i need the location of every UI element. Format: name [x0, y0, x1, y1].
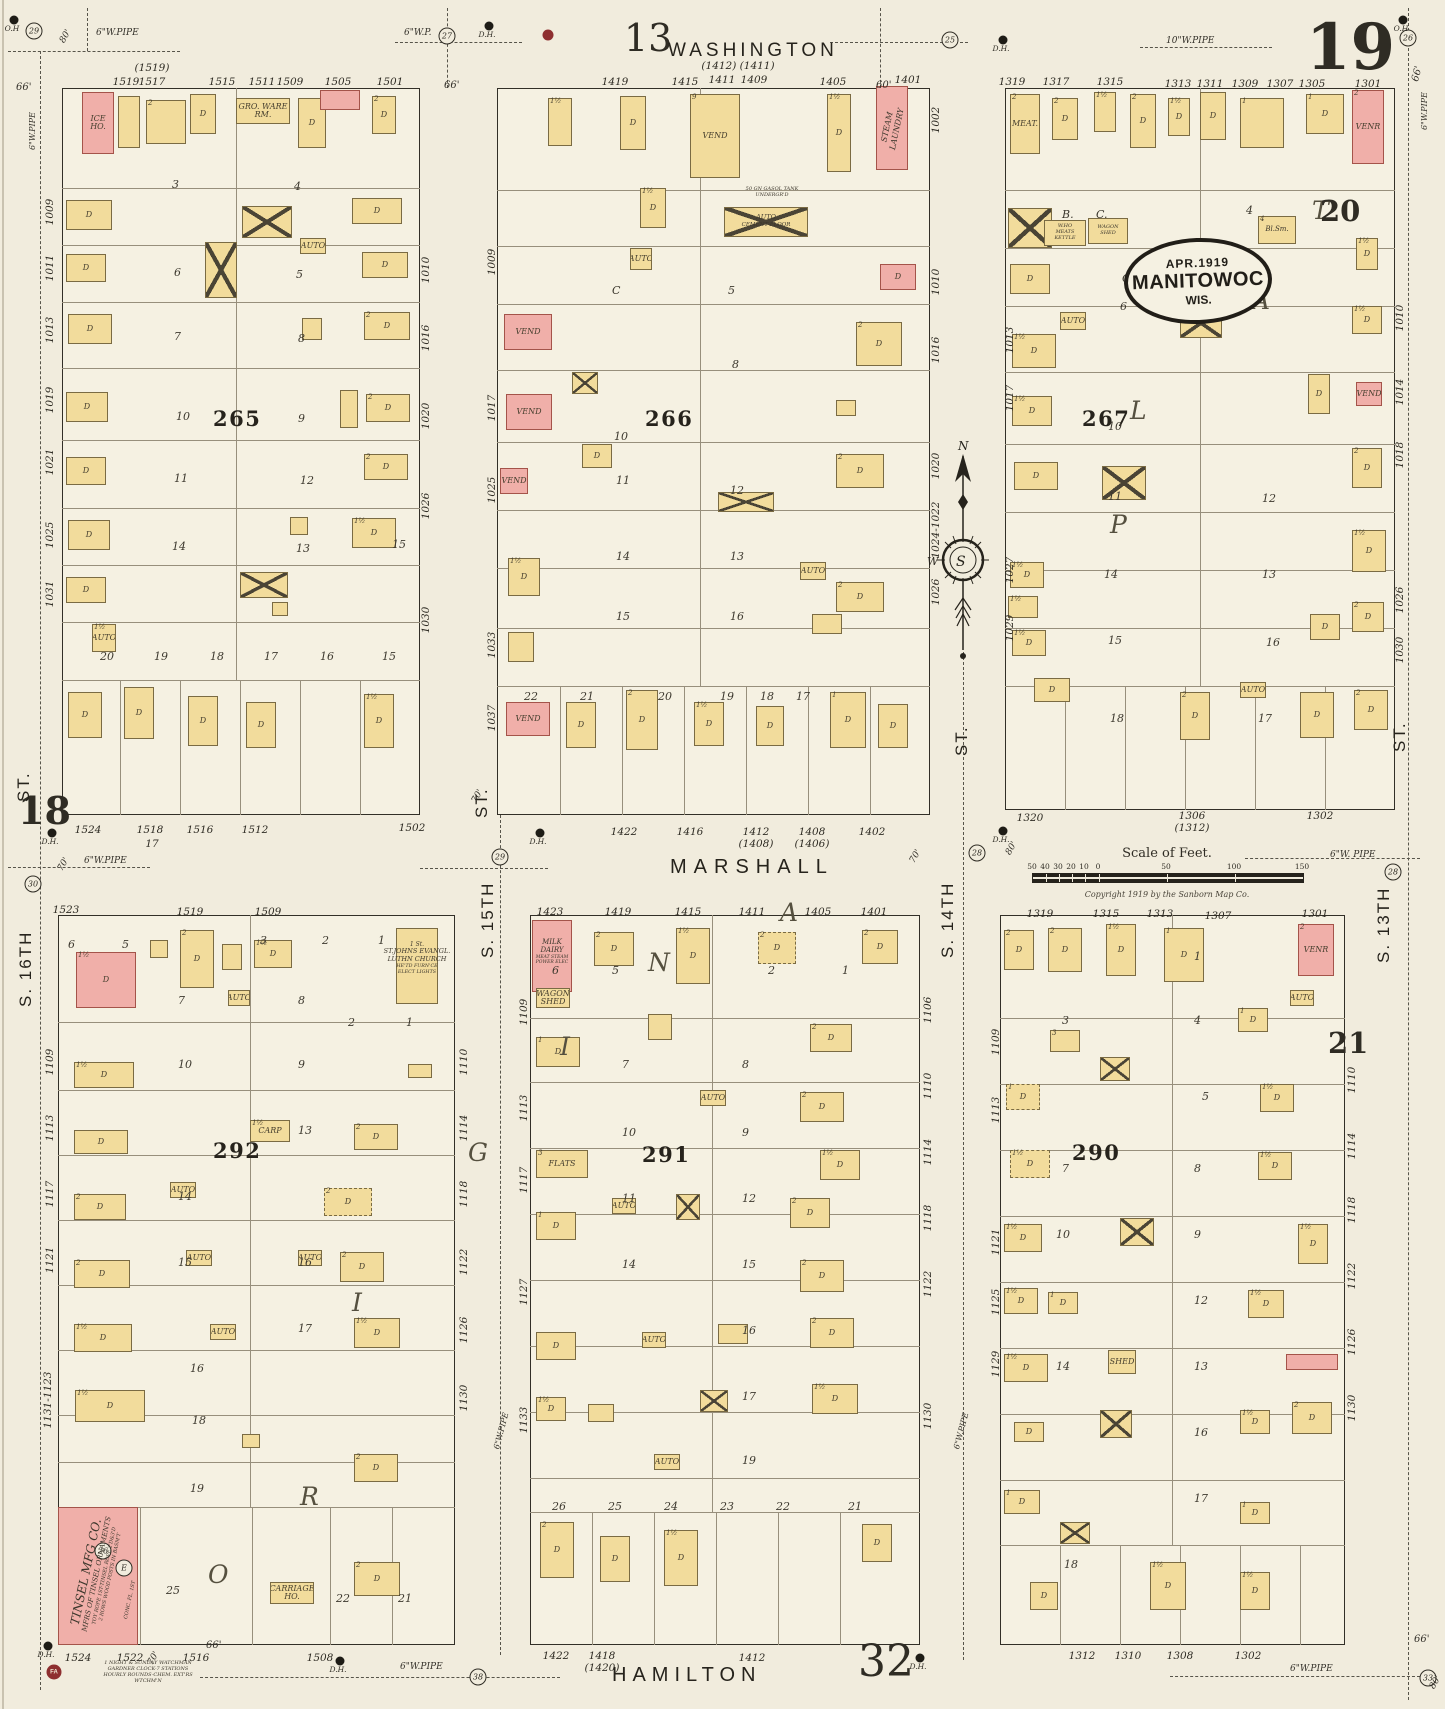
- utility-marker: 38: [470, 1669, 487, 1686]
- building: FLATS3: [536, 1150, 588, 1178]
- compass-rose: N S W: [925, 438, 1001, 666]
- building: D2: [354, 1124, 398, 1150]
- building-storeys: 2: [628, 689, 632, 697]
- building: D1½: [1106, 924, 1136, 976]
- water-pipe-line: [447, 8, 448, 88]
- plat-letter: N: [648, 948, 670, 977]
- building: D1½: [508, 558, 540, 596]
- lot-line: [1000, 1545, 1345, 1546]
- building-label: D: [1353, 531, 1385, 571]
- utility-marker: E: [116, 1560, 133, 1577]
- building-storeys: 3: [1052, 1029, 1056, 1037]
- map-annotation: 10"W.PIPE: [1166, 36, 1214, 46]
- house-number: 1401: [895, 74, 922, 86]
- building-label: ICE HO.: [83, 93, 113, 153]
- building-storeys: 1½: [78, 951, 89, 959]
- lot-number: 3: [172, 178, 179, 191]
- building: [1100, 1057, 1130, 1081]
- building: [272, 602, 288, 616]
- lot-number: 3: [260, 934, 267, 947]
- building-storeys: 2: [596, 931, 600, 939]
- building: [648, 1014, 672, 1040]
- lot-number: 14: [1056, 1360, 1070, 1373]
- street-label-marshall: MARSHALL: [670, 856, 834, 879]
- building-storeys: 1½: [1108, 923, 1119, 931]
- building-storeys: 2: [1132, 93, 1136, 101]
- building-label: VEND: [507, 395, 551, 429]
- building: [1120, 1218, 1154, 1246]
- building-label: D: [857, 323, 901, 365]
- building: D: [246, 702, 276, 748]
- building-storeys: 1: [1006, 1489, 1010, 1497]
- building-label: D: [1011, 265, 1049, 293]
- map-label: 1 NIGHT & SUNDAY WATCHMANGARDNER CLOCK-7…: [103, 1660, 192, 1684]
- building: AUTO: [210, 1324, 236, 1340]
- house-number: 1118: [1346, 1197, 1358, 1224]
- lot-line: [716, 1512, 717, 1645]
- house-number: 1020: [420, 403, 432, 430]
- building-label: AUTO: [631, 249, 651, 269]
- building-storeys: 1½: [1012, 1149, 1023, 1157]
- building: D: [1034, 678, 1070, 702]
- building-label: D: [367, 395, 409, 421]
- lot-number: 14: [622, 1258, 636, 1271]
- building: D: [1014, 462, 1058, 490]
- house-number: 1319: [999, 76, 1026, 88]
- building: MEAT.2: [1010, 94, 1040, 154]
- building-storeys: 1: [1240, 1007, 1244, 1015]
- building-label: D: [595, 933, 633, 965]
- scale-tick: 40: [1040, 862, 1050, 871]
- building-label: AUTO: [229, 991, 249, 1005]
- building-storeys: 2: [542, 1521, 546, 1529]
- lot-line: [1120, 1545, 1121, 1645]
- building-label: D: [75, 1195, 125, 1219]
- lot-line: [330, 1507, 331, 1645]
- lot-number: 18: [192, 1414, 206, 1427]
- building-label: WAGON SHED: [537, 989, 569, 1007]
- plat-letter: L: [1130, 396, 1147, 425]
- building-label: D: [791, 1199, 829, 1227]
- building: D: [582, 444, 612, 468]
- building-label: D: [325, 1189, 371, 1215]
- building: D1½: [1004, 1288, 1038, 1314]
- building-label: D: [811, 1025, 851, 1051]
- building-storeys: 1½: [696, 701, 707, 709]
- building-storeys: 2: [858, 321, 862, 329]
- building-label: D: [341, 1253, 383, 1281]
- building-label: VEND: [501, 469, 527, 493]
- map-annotation: 6"W. PIPE: [1330, 850, 1376, 860]
- lot-number: 16: [730, 610, 744, 623]
- hydrant-label: O.H: [1394, 24, 1409, 33]
- lot-number: 1: [406, 1016, 413, 1029]
- building: D: [74, 1130, 128, 1154]
- scale-bar: [1032, 873, 1304, 883]
- building-label: D: [837, 455, 883, 487]
- lot-number: 1: [842, 964, 849, 977]
- hydrant-label: D.H.: [992, 44, 1009, 53]
- lot-line: [1300, 1545, 1301, 1645]
- lot-number: 25: [608, 1500, 622, 1513]
- building: [150, 940, 168, 958]
- house-number: 1405: [820, 76, 847, 88]
- lot-line: [62, 245, 420, 246]
- building-label: D: [1293, 1403, 1331, 1433]
- building-storeys: 2: [1050, 927, 1054, 935]
- lot-number: 11: [616, 474, 630, 487]
- map-annotation: 66': [206, 1640, 221, 1651]
- lot-number: 5: [296, 268, 303, 281]
- lot-number: 17: [742, 1390, 756, 1403]
- house-number: 1013: [44, 317, 56, 344]
- lot-line: [62, 188, 420, 189]
- building-storeys: 2: [760, 931, 764, 939]
- lot-line: [530, 1082, 920, 1083]
- building: D1½: [1352, 530, 1386, 572]
- lot-line: [1255, 686, 1256, 810]
- building: D2: [1292, 1402, 1332, 1434]
- map-annotation: 6"W.PIPE: [952, 1411, 971, 1450]
- lot-number: C.: [1096, 208, 1108, 221]
- building: D1½: [1248, 1290, 1284, 1318]
- house-number: 1126: [458, 1317, 470, 1344]
- plat-letter: O: [208, 1560, 229, 1589]
- house-number: 1311: [1197, 78, 1224, 90]
- house-number: 1106: [922, 997, 934, 1024]
- building: D1½: [352, 518, 396, 548]
- building: D1½: [640, 188, 666, 228]
- building: AUTO1½: [92, 624, 116, 652]
- building: 3: [1050, 1030, 1080, 1052]
- house-number: 1010: [1394, 305, 1406, 332]
- building: [340, 390, 358, 428]
- block-number: 290: [1072, 1140, 1120, 1165]
- house-number: 1523: [53, 904, 80, 916]
- lot-number: 8: [298, 332, 305, 345]
- house-number: 1319: [1027, 908, 1054, 920]
- lot-number: C: [612, 284, 620, 297]
- street-label-s14th-st: ST.: [952, 696, 972, 756]
- house-number: 1412: [739, 1652, 766, 1664]
- house-number: 1010: [420, 257, 432, 284]
- building: [718, 492, 774, 512]
- building: [700, 1390, 728, 1412]
- lot-number: 13: [1194, 1360, 1208, 1373]
- building: D2: [810, 1318, 854, 1348]
- building-storeys: 2: [148, 99, 152, 107]
- building: D1½: [1258, 1152, 1292, 1180]
- lot-number: 6: [68, 938, 75, 951]
- water-pipe-line: [8, 867, 150, 868]
- building-label: D: [1151, 1563, 1185, 1609]
- house-number: 1018: [1394, 442, 1406, 469]
- hydrant-label: D.H.: [41, 837, 58, 846]
- map-label-line: POWER ELEC: [536, 960, 569, 965]
- house-number: 1010: [930, 269, 942, 296]
- street-label-s16th-st: ST.: [14, 742, 34, 802]
- lot-number: 10: [1108, 420, 1122, 433]
- house-number: 1511: [249, 76, 276, 88]
- lot-number: 9: [1194, 1228, 1201, 1241]
- lot-number: 6: [552, 964, 559, 977]
- building: D1½: [1010, 1150, 1050, 1178]
- building: D2: [1352, 602, 1384, 632]
- building: 2: [146, 100, 186, 144]
- building-label: D: [1181, 693, 1209, 739]
- building-label: MEAT.: [1011, 95, 1039, 153]
- building: D: [188, 696, 218, 746]
- lot-line: [530, 1018, 920, 1019]
- house-number: 1302: [1307, 810, 1334, 822]
- building-label: D: [365, 313, 409, 339]
- building: D: [880, 264, 916, 290]
- house-number: 1009: [44, 199, 56, 226]
- lot-number: 4: [1246, 204, 1253, 217]
- building-label: D: [69, 693, 101, 737]
- map-label: AUTOCEMENT FLOOR: [742, 214, 791, 228]
- building-storeys: 1½: [1354, 529, 1365, 537]
- house-number: 1030: [420, 607, 432, 634]
- house-number: 1109: [518, 999, 530, 1026]
- lot-number: 13: [730, 550, 744, 563]
- building: D: [124, 687, 154, 739]
- building-label: D: [677, 929, 709, 983]
- building: D2: [856, 322, 902, 366]
- utility-marker: 30: [25, 876, 42, 893]
- building-label: D: [801, 1093, 843, 1121]
- house-number: 1502: [399, 822, 426, 834]
- water-pipe-line: [40, 51, 41, 1690]
- house-number: 1037: [486, 705, 498, 732]
- building-storeys: 2: [374, 95, 378, 103]
- lot-line: [62, 440, 420, 441]
- lot-number: 21: [398, 1592, 412, 1605]
- building: [1100, 1410, 1132, 1438]
- lot-number: 5: [728, 284, 735, 297]
- map-annotation: 60': [876, 80, 891, 91]
- map-annotation: 6"W.PIPE: [492, 1411, 511, 1450]
- house-number: 1125: [990, 1289, 1002, 1316]
- house-number: 1110: [1346, 1067, 1358, 1094]
- house-number: 1519: [113, 76, 140, 88]
- lot-line: [778, 1512, 779, 1645]
- building-storeys: 2: [864, 929, 868, 937]
- building-label: D: [1031, 1583, 1057, 1609]
- building: D2: [180, 930, 214, 988]
- scale-tick: 30: [1053, 862, 1063, 871]
- lot-line: [1005, 190, 1395, 191]
- map-annotation: 6"W.PIPE: [96, 28, 139, 38]
- building-label: D: [189, 697, 217, 745]
- building: D2: [1180, 692, 1210, 740]
- building-storeys: 2: [356, 1561, 360, 1569]
- lot-number: 22: [524, 690, 538, 703]
- lot-line: [1005, 570, 1395, 571]
- house-number: 1515: [209, 76, 236, 88]
- building: AUTO: [1290, 990, 1314, 1006]
- house-number: 1113: [44, 1115, 56, 1142]
- lot-number: 4: [294, 180, 301, 193]
- scale-tick: 0: [1096, 862, 1101, 871]
- building: D2: [810, 1024, 852, 1052]
- building-label: D: [69, 521, 109, 549]
- building-storeys: 2: [1356, 689, 1360, 697]
- lot-line: [592, 1512, 593, 1645]
- lot-number: 19: [154, 650, 168, 663]
- building: CARRIAGE HO.: [270, 1582, 314, 1604]
- scale-tick: 50: [1027, 862, 1037, 871]
- building-storeys: 1½: [1006, 1353, 1017, 1361]
- block-number: 291: [642, 1142, 690, 1167]
- building-label: D: [69, 315, 111, 343]
- lot-line: [58, 1090, 455, 1091]
- building-label: SHED: [1109, 1351, 1135, 1373]
- building-storeys: 9: [692, 93, 696, 101]
- building-storeys: 1½: [1300, 1223, 1311, 1231]
- house-number: 1118: [922, 1205, 934, 1232]
- building-label: AUTO: [1291, 991, 1313, 1005]
- house-number: 1113: [990, 1097, 1002, 1124]
- building: D: [878, 704, 908, 748]
- building-label: VEND: [1357, 383, 1381, 405]
- building: D: [66, 254, 106, 282]
- building: D1½: [1150, 1562, 1186, 1610]
- house-number: 1415: [675, 906, 702, 918]
- lot-number: 19: [720, 690, 734, 703]
- building: D2: [626, 690, 658, 750]
- building: D2: [340, 1252, 384, 1282]
- building-label: VEND: [691, 95, 739, 177]
- lot-line: [1005, 512, 1395, 513]
- house-number: 1017: [486, 395, 498, 422]
- building: D2: [354, 1454, 398, 1482]
- house-number: 1019: [44, 387, 56, 414]
- lot-number: 18: [1110, 712, 1124, 725]
- lot-number: 15: [392, 538, 406, 551]
- building-storeys: 1½: [1262, 1083, 1273, 1091]
- lot-number: 6: [174, 266, 181, 279]
- water-pipe-line: [880, 8, 881, 88]
- house-number: 1117: [518, 1167, 530, 1194]
- building: D2: [372, 96, 396, 134]
- utility-marker: 29: [26, 23, 43, 40]
- building-label: D: [67, 255, 105, 281]
- lot-line: [684, 686, 685, 815]
- lot-number: 20: [658, 690, 672, 703]
- building-storeys: 2: [182, 929, 186, 937]
- lot-line: [62, 368, 420, 369]
- building-storeys: 2: [1354, 601, 1358, 609]
- building: VEND: [504, 314, 552, 350]
- building-label: AUTO: [801, 563, 825, 579]
- map-label-line: CEMENT FLOOR: [742, 222, 791, 229]
- house-number: 1315: [1097, 76, 1124, 88]
- building-label: D: [1311, 615, 1339, 639]
- building: D2: [836, 454, 884, 488]
- sanborn-map-sheet: 13 WASHINGTON MARSHALL HAMILTON 32 19 20…: [0, 0, 1445, 1709]
- building: D2: [540, 1522, 574, 1578]
- lot-line: [497, 442, 930, 443]
- lot-number: 8: [298, 994, 305, 1007]
- house-number: 1014: [1394, 379, 1406, 406]
- building-label: D: [831, 693, 865, 747]
- building: D1½: [1012, 334, 1056, 368]
- house-number: 1113: [518, 1095, 530, 1122]
- building: AUTO: [1240, 682, 1266, 698]
- lot-line: [250, 915, 251, 1507]
- lot-line: [530, 1148, 920, 1149]
- building: D: [536, 1332, 576, 1360]
- lot-number: 26: [552, 1500, 566, 1513]
- house-number: 1122: [458, 1249, 470, 1276]
- lot-line: [1000, 1348, 1345, 1349]
- map-label: 50 GN GASOL TANKUNDERGR'D: [746, 186, 799, 198]
- building-label: FLATS: [537, 1151, 587, 1177]
- building-label: D: [621, 97, 645, 149]
- lot-number: 7: [174, 330, 181, 343]
- lot-number: 17: [298, 1322, 312, 1335]
- building: D1½: [1240, 1572, 1270, 1610]
- hydrant-label: D.H.: [37, 1650, 54, 1659]
- building: D: [352, 198, 402, 224]
- map-label: MILKDAIRYMEAT STEAMPOWER ELEC: [536, 938, 569, 966]
- scale-tick: 100: [1227, 862, 1241, 871]
- map-label: Bl.Sm.: [1265, 225, 1288, 233]
- lot-line: [252, 1507, 253, 1645]
- building: D: [756, 706, 784, 746]
- house-number: (1406): [795, 838, 830, 850]
- building: D: [66, 577, 106, 603]
- utility-marker: 25: [942, 32, 959, 49]
- lot-number: 12: [730, 484, 744, 497]
- lot-line: [1005, 444, 1395, 445]
- building: D: [1300, 692, 1334, 738]
- lot-line: [1000, 1018, 1345, 1019]
- lot-number: 8: [1194, 1162, 1201, 1175]
- building: D: [1308, 374, 1330, 414]
- building: [222, 944, 242, 970]
- building: D: [190, 94, 216, 134]
- lot-line: [1172, 915, 1173, 1545]
- lot-line: [240, 680, 241, 815]
- building: D2: [364, 312, 410, 340]
- building-label: D: [363, 253, 407, 277]
- house-number: 1519: [177, 906, 204, 918]
- house-number: 1013: [1004, 327, 1016, 354]
- building-storeys: 1½: [1354, 305, 1365, 313]
- building-storeys: 1½: [94, 623, 105, 631]
- street-label-s13th-st: ST.: [1390, 692, 1410, 752]
- building: 1: [1240, 98, 1284, 148]
- lot-line: [360, 680, 361, 815]
- building-storeys: 3: [538, 1149, 542, 1157]
- building-storeys: 2: [1354, 89, 1358, 97]
- building: D1½: [676, 928, 710, 984]
- lot-number: B.: [1062, 208, 1074, 221]
- house-number: 1026: [1394, 587, 1406, 614]
- lot-line: [497, 190, 930, 191]
- building-label: D: [627, 691, 657, 749]
- building-label: D: [77, 953, 135, 1007]
- building-storeys: 1½: [1250, 1289, 1261, 1297]
- lot-number: 19: [190, 1482, 204, 1495]
- building-storeys: 1½: [1152, 1561, 1163, 1569]
- building-storeys: 2: [366, 311, 370, 319]
- building-label: VEND: [505, 315, 551, 349]
- lot-number: 17: [264, 650, 278, 663]
- lot-number: 13: [296, 542, 310, 555]
